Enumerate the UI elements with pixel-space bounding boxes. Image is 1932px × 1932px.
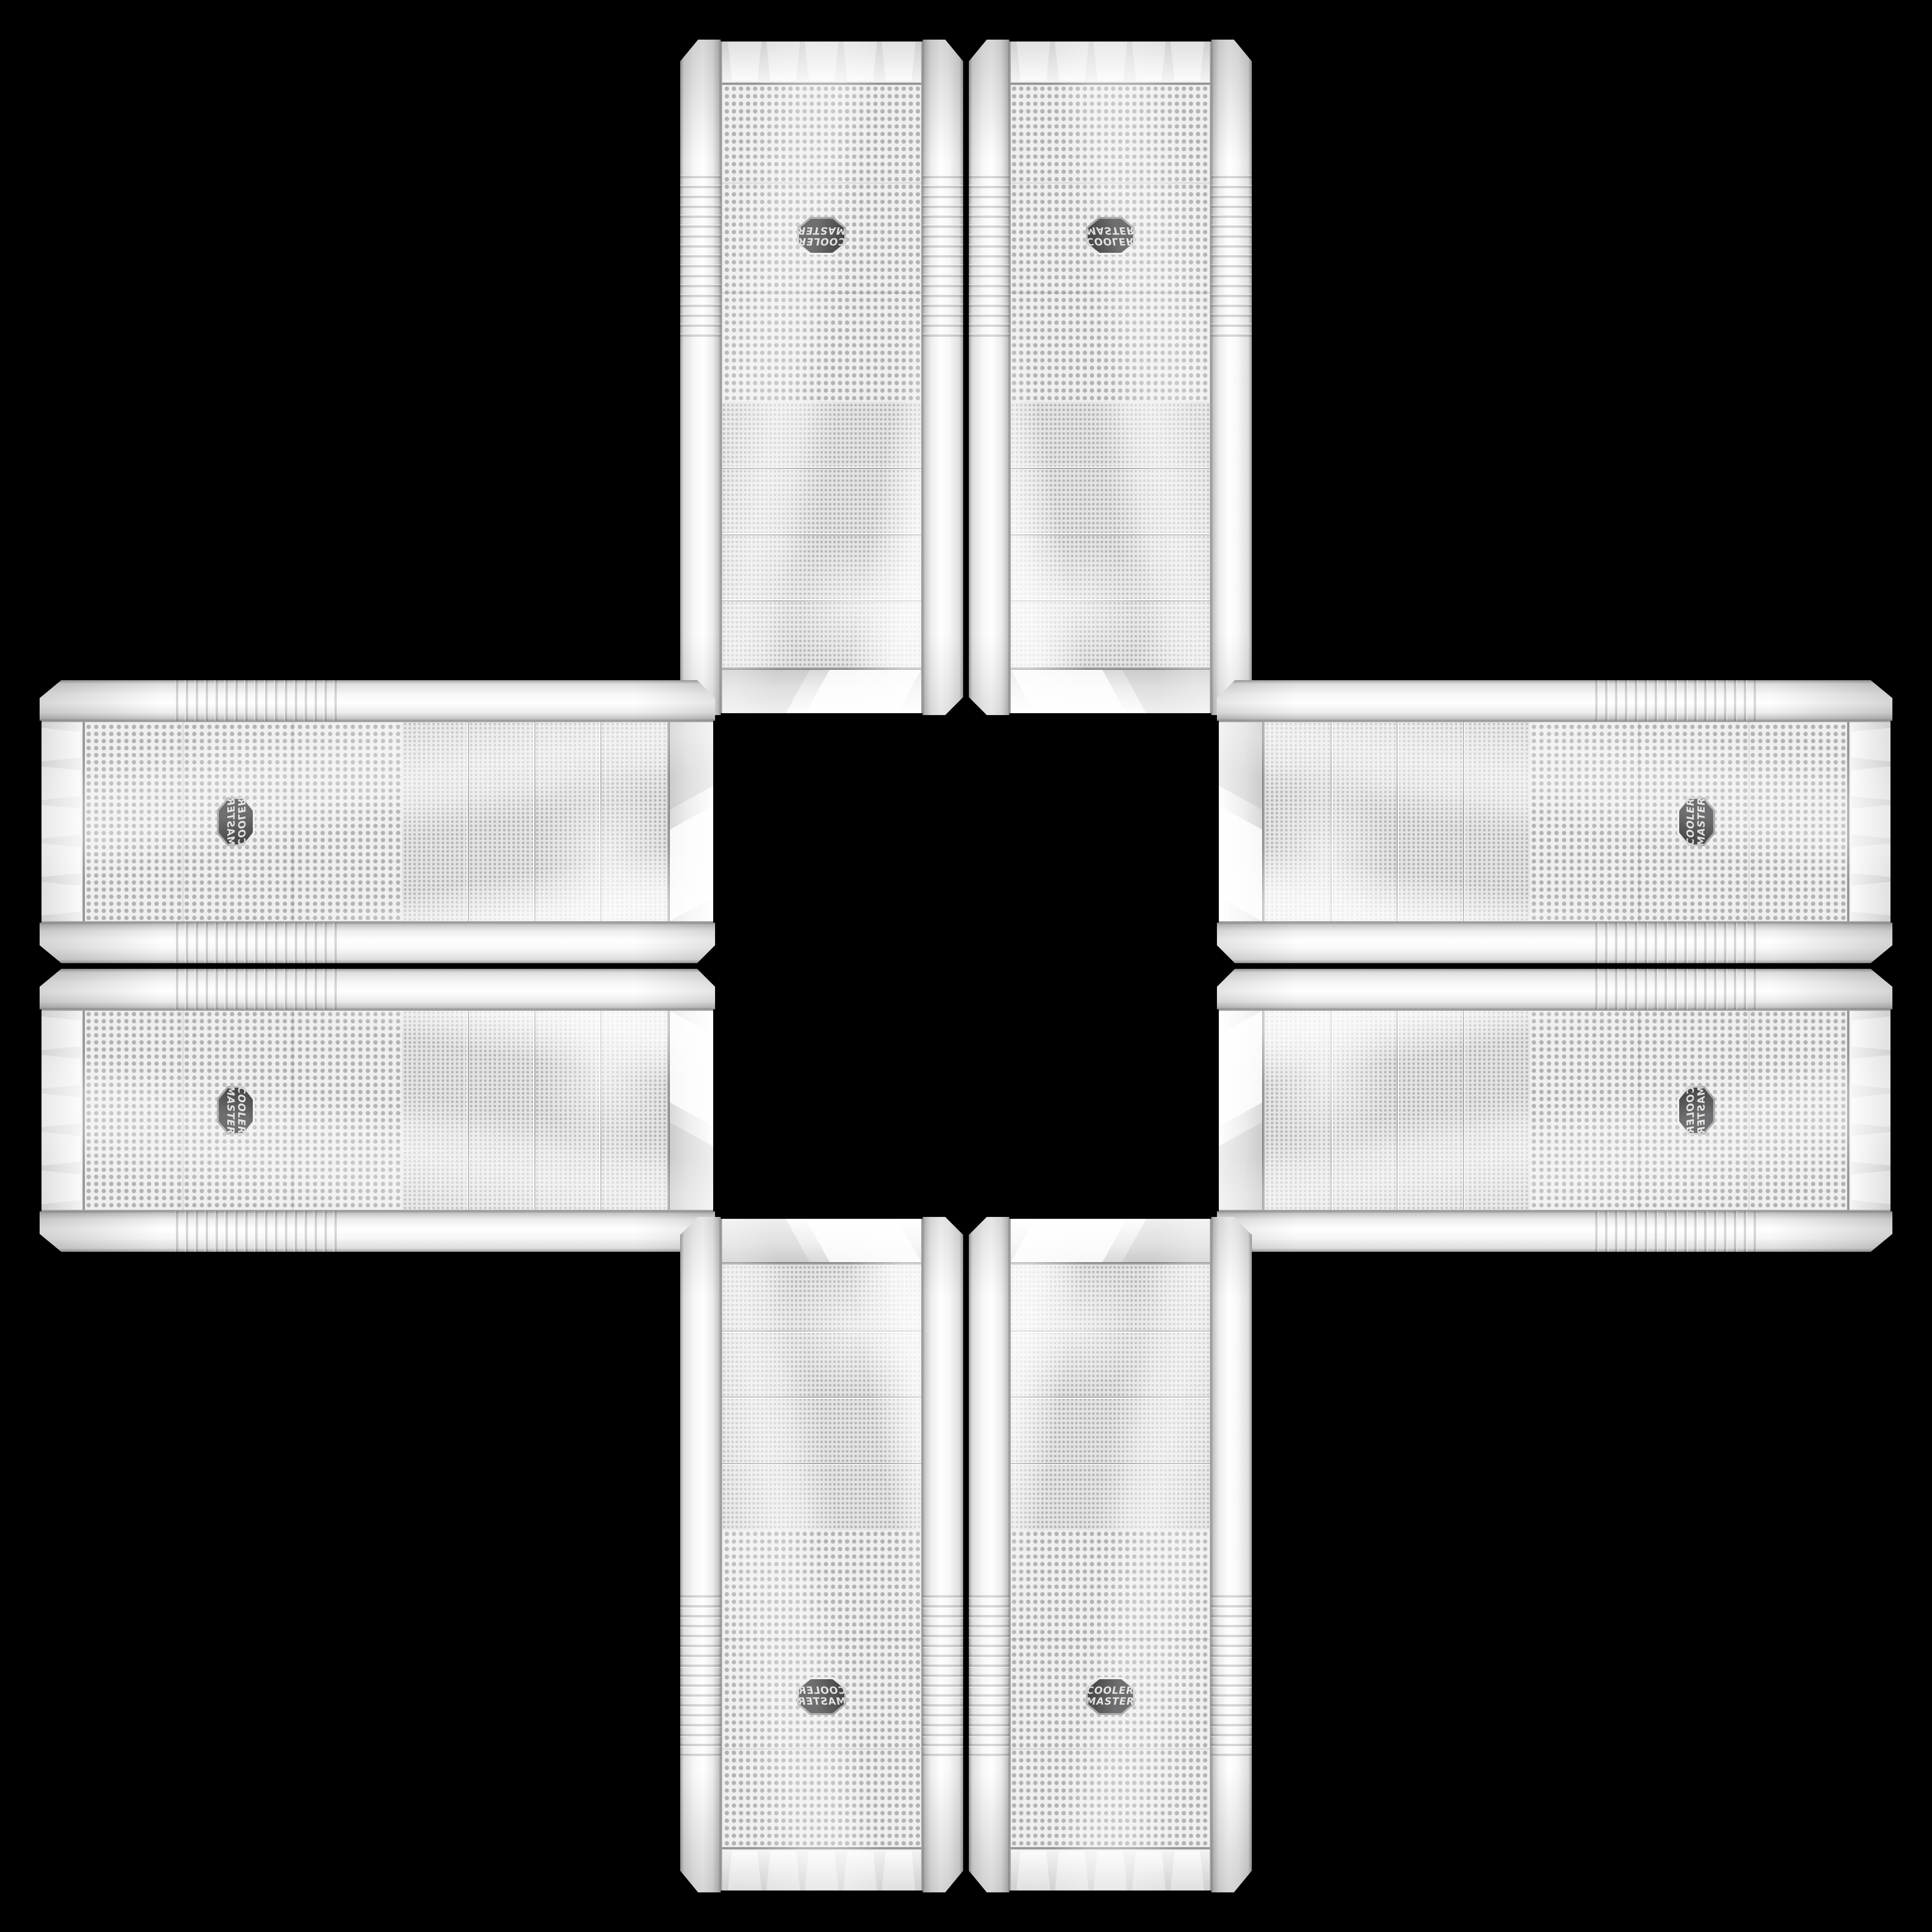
- drive-bay-covers: [1265, 722, 1530, 921]
- bezel-tab: [882, 1851, 916, 1890]
- front-mesh-panel: COOLER MASTER: [1530, 722, 1847, 921]
- cap-ridges-left: [175, 969, 343, 1009]
- bezel-tab: [805, 42, 839, 81]
- drive-bay-cover: [1011, 1332, 1210, 1398]
- side-cap-right: [680, 40, 721, 715]
- bezel-tab: [42, 805, 81, 839]
- drive-bay-cover: [1265, 722, 1332, 921]
- badge-text-line1: COOLER: [236, 798, 247, 845]
- drive-bay-cover: [722, 601, 921, 667]
- drive-bay-cover: [1011, 402, 1210, 468]
- badge-text-line2: MASTER: [225, 797, 236, 846]
- drive-bay-cover: [1464, 722, 1531, 921]
- bezel-tab: [1851, 882, 1890, 916]
- top-bezel: [1011, 1219, 1210, 1262]
- bottom-bezel: [1011, 1847, 1210, 1890]
- drive-bay-cover: [1011, 1464, 1210, 1531]
- bezel-tab: [42, 1132, 81, 1166]
- silver-trim: [667, 1011, 670, 1210]
- cooler-master-badge-core: COOLER MASTER: [1088, 1679, 1133, 1713]
- side-cap-right: [1211, 1217, 1252, 1892]
- cap-ridges-right: [175, 1211, 343, 1252]
- front-mesh-panel: COOLER MASTER: [1530, 1011, 1847, 1210]
- bottom-bezel: [1011, 42, 1210, 85]
- top-bezel: [1011, 670, 1210, 713]
- bezel-tab: [1132, 42, 1166, 81]
- cap-ridges-right: [1589, 1211, 1757, 1252]
- drive-bay-cover: [534, 1011, 601, 1210]
- cooler-master-badge-core: COOLER MASTER: [1679, 1088, 1713, 1133]
- bezel-tab: [1132, 1851, 1166, 1890]
- drive-bay-cover: [1011, 534, 1210, 601]
- front-mesh-panel: COOLER MASTER: [85, 1011, 402, 1210]
- drive-bay-cover: [722, 402, 921, 468]
- bezel-tab: [42, 1016, 81, 1050]
- cooler-master-badge: COOLER MASTER: [797, 217, 846, 255]
- cooler-master-badge: COOLER MASTER: [217, 1086, 255, 1135]
- pc-case-bottom-left: COOLER MASTER: [677, 1215, 966, 1894]
- bottom-bezel: [1847, 1011, 1890, 1210]
- side-cap-right: [1217, 1211, 1892, 1252]
- front-panel: COOLER MASTER: [42, 721, 713, 923]
- bezel-tab: [42, 766, 81, 800]
- bezel-tab-row: [1011, 1849, 1210, 1890]
- badge-text-line2: MASTER: [1086, 225, 1134, 236]
- side-cap-left: [40, 923, 715, 963]
- top-bezel: [1219, 1011, 1262, 1210]
- bottom-bezel: [42, 1011, 85, 1210]
- cap-ridges-left: [1589, 923, 1757, 963]
- bezel-tab: [1851, 1016, 1890, 1050]
- side-cap-right: [1217, 680, 1892, 721]
- cap-ridges-left: [923, 1589, 963, 1757]
- cap-ridges-right: [1211, 175, 1252, 343]
- cap-ridges-right: [680, 175, 721, 343]
- drive-bay-cover: [1398, 722, 1464, 921]
- bezel-tab: [843, 42, 877, 81]
- bezel-tab: [42, 882, 81, 916]
- badge-text-line1: COOLER: [1685, 798, 1696, 845]
- top-bezel: [722, 1219, 921, 1262]
- bezel-tab: [42, 1170, 81, 1204]
- bezel-tab: [843, 1851, 877, 1890]
- bezel-tab: [766, 1851, 800, 1890]
- side-cap-right: [680, 1217, 721, 1892]
- drive-bay-cover: [601, 1011, 667, 1210]
- badge-text-line1: COOLER: [1087, 236, 1134, 247]
- cooler-master-badge-core: COOLER MASTER: [799, 219, 844, 253]
- bezel-tab-row: [42, 1011, 83, 1210]
- cap-ridges-left: [969, 175, 1009, 343]
- cap-ridges-left: [969, 1589, 1009, 1757]
- bezel-tab: [1093, 42, 1127, 81]
- bezel-tab: [1851, 1093, 1890, 1127]
- cooler-master-badge-core: COOLER MASTER: [1679, 799, 1713, 844]
- cap-ridges-left: [923, 175, 963, 343]
- drive-bay-cover: [402, 722, 468, 921]
- cooler-master-badge-core: COOLER MASTER: [219, 1088, 253, 1133]
- bezel-tab: [42, 728, 81, 762]
- cooler-master-badge: COOLER MASTER: [1086, 217, 1135, 255]
- drive-bay-cover: [1011, 468, 1210, 535]
- drive-bay-cover: [722, 1464, 921, 1531]
- drive-bay-cover: [1265, 1011, 1332, 1210]
- drive-bay-cover: [1464, 1011, 1531, 1210]
- bezel-tab-row: [722, 42, 921, 83]
- front-panel: COOLER MASTER: [1219, 1009, 1890, 1211]
- front-mesh-panel: COOLER MASTER: [1011, 85, 1210, 402]
- bezel-tab: [1851, 805, 1890, 839]
- badge-text-line2: MASTER: [1696, 797, 1707, 846]
- pc-case-right-bottom: COOLER MASTER: [1215, 966, 1894, 1255]
- bezel-tab-row: [1849, 722, 1890, 921]
- bezel-tab: [1093, 1851, 1127, 1890]
- bezel-tab: [766, 42, 800, 81]
- side-cap-right: [1211, 40, 1252, 715]
- drive-bay-cover: [601, 722, 667, 921]
- drive-bay-covers: [402, 722, 667, 921]
- cooler-master-badge: COOLER MASTER: [1677, 1086, 1715, 1135]
- drive-bay-cover: [1011, 1398, 1210, 1464]
- cooler-master-badge-core: COOLER MASTER: [799, 1679, 844, 1713]
- silver-trim: [1011, 667, 1210, 670]
- cooler-master-badge: COOLER MASTER: [1677, 797, 1715, 846]
- bezel-tab: [1016, 42, 1050, 81]
- cap-ridges-right: [1589, 680, 1757, 721]
- bottom-bezel: [42, 722, 85, 921]
- drive-bay-cover: [722, 468, 921, 535]
- badge-text-line2: MASTER: [1696, 1086, 1707, 1134]
- bezel-tab-row: [42, 722, 83, 921]
- badge-text-line1: COOLER: [798, 236, 845, 247]
- cooler-master-badge: COOLER MASTER: [1086, 1677, 1135, 1715]
- side-cap-left: [969, 40, 1009, 715]
- front-panel: COOLER MASTER: [721, 42, 923, 713]
- silver-trim: [667, 722, 670, 921]
- bezel-tab: [1851, 1170, 1890, 1204]
- collage-canvas: COOLER MASTER: [0, 0, 1932, 1932]
- bottom-bezel: [722, 42, 921, 85]
- front-mesh-panel: COOLER MASTER: [722, 1530, 921, 1847]
- pc-case-bottom-right: COOLER MASTER: [966, 1215, 1255, 1894]
- side-cap-left: [969, 1217, 1009, 1892]
- bottom-bezel: [722, 1847, 921, 1890]
- cap-ridges-left: [175, 923, 343, 963]
- front-panel: COOLER MASTER: [42, 1009, 713, 1211]
- pc-case-right-top: COOLER MASTER: [1215, 677, 1894, 966]
- bezel-tab: [1055, 1851, 1089, 1890]
- side-cap-right: [40, 1211, 715, 1252]
- side-cap-left: [923, 1217, 963, 1892]
- pc-case-top-left: COOLER MASTER: [677, 38, 966, 717]
- bezel-tab: [1170, 42, 1204, 81]
- bottom-bezel: [1847, 722, 1890, 921]
- top-bezel: [670, 722, 713, 921]
- drive-bay-cover: [402, 1011, 468, 1210]
- drive-bay-cover: [1332, 1011, 1398, 1210]
- bezel-tab: [728, 42, 762, 81]
- drive-bay-covers: [1265, 1011, 1530, 1210]
- drive-bay-cover: [722, 534, 921, 601]
- drive-bay-cover: [722, 1332, 921, 1398]
- drive-bay-cover: [468, 1011, 535, 1210]
- bezel-tab: [42, 1055, 81, 1089]
- cooler-master-badge: COOLER MASTER: [797, 1677, 846, 1715]
- front-panel: COOLER MASTER: [1009, 42, 1211, 713]
- front-panel: COOLER MASTER: [721, 1219, 923, 1890]
- side-cap-left: [923, 40, 963, 715]
- cap-ridges-left: [1589, 969, 1757, 1009]
- badge-text-line2: MASTER: [797, 225, 846, 236]
- drive-bay-cover: [1398, 1011, 1464, 1210]
- bezel-tab-row: [1011, 42, 1210, 83]
- front-panel: COOLER MASTER: [1219, 721, 1890, 923]
- drive-bay-covers: [402, 1011, 667, 1210]
- cooler-master-badge-core: COOLER MASTER: [219, 799, 253, 844]
- badge-text-line1: COOLER: [236, 1087, 247, 1134]
- bezel-tab: [1851, 766, 1890, 800]
- bezel-tab-row: [1849, 1011, 1890, 1210]
- side-cap-left: [1217, 969, 1892, 1009]
- drive-bay-covers: [1011, 402, 1210, 667]
- front-panel: COOLER MASTER: [1009, 1219, 1211, 1890]
- bezel-tab: [1851, 1055, 1890, 1089]
- bezel-tab: [1851, 1132, 1890, 1166]
- top-bezel: [722, 670, 921, 713]
- drive-bay-cover: [1011, 601, 1210, 667]
- front-mesh-panel: COOLER MASTER: [85, 722, 402, 921]
- bezel-tab-row: [722, 1849, 921, 1890]
- drive-bay-cover: [722, 1398, 921, 1464]
- drive-bay-covers: [722, 402, 921, 667]
- badge-text-line1: COOLER: [1087, 1685, 1134, 1696]
- drive-bay-cover: [722, 1265, 921, 1332]
- drive-bay-covers: [1011, 1265, 1210, 1530]
- cap-ridges-right: [680, 1589, 721, 1757]
- drive-bay-cover: [1332, 722, 1398, 921]
- drive-bay-covers: [722, 1265, 921, 1530]
- front-mesh-panel: COOLER MASTER: [1011, 1530, 1210, 1847]
- cooler-master-badge: COOLER MASTER: [217, 797, 255, 846]
- badge-text-line2: MASTER: [1086, 1696, 1134, 1707]
- side-cap-right: [40, 680, 715, 721]
- side-cap-left: [1217, 923, 1892, 963]
- top-bezel: [670, 1011, 713, 1210]
- front-mesh-panel: COOLER MASTER: [722, 85, 921, 402]
- bezel-tab: [1851, 728, 1890, 762]
- pc-case-top-right: COOLER MASTER: [966, 38, 1255, 717]
- bezel-tab: [42, 1093, 81, 1127]
- cap-ridges-right: [1211, 1589, 1252, 1757]
- silver-trim: [722, 667, 921, 670]
- bezel-tab: [1016, 1851, 1050, 1890]
- badge-text-line1: COOLER: [798, 1685, 845, 1696]
- top-bezel: [1219, 722, 1262, 921]
- pc-case-left-top: COOLER MASTER: [38, 677, 717, 966]
- drive-bay-cover: [468, 722, 535, 921]
- badge-text-line1: COOLER: [1685, 1087, 1696, 1134]
- bezel-tab: [42, 843, 81, 877]
- bezel-tab: [1055, 42, 1089, 81]
- cooler-master-badge-core: COOLER MASTER: [1088, 219, 1133, 253]
- drive-bay-cover: [1011, 1265, 1210, 1332]
- side-cap-left: [40, 969, 715, 1009]
- badge-text-line2: MASTER: [225, 1086, 236, 1134]
- bezel-tab: [1851, 843, 1890, 877]
- drive-bay-cover: [534, 722, 601, 921]
- cap-ridges-right: [175, 680, 343, 721]
- bezel-tab: [1170, 1851, 1204, 1890]
- pc-case-left-bottom: COOLER MASTER: [38, 966, 717, 1255]
- bezel-tab: [728, 1851, 762, 1890]
- badge-text-line2: MASTER: [797, 1696, 846, 1707]
- bezel-tab: [882, 42, 916, 81]
- bezel-tab: [805, 1851, 839, 1890]
